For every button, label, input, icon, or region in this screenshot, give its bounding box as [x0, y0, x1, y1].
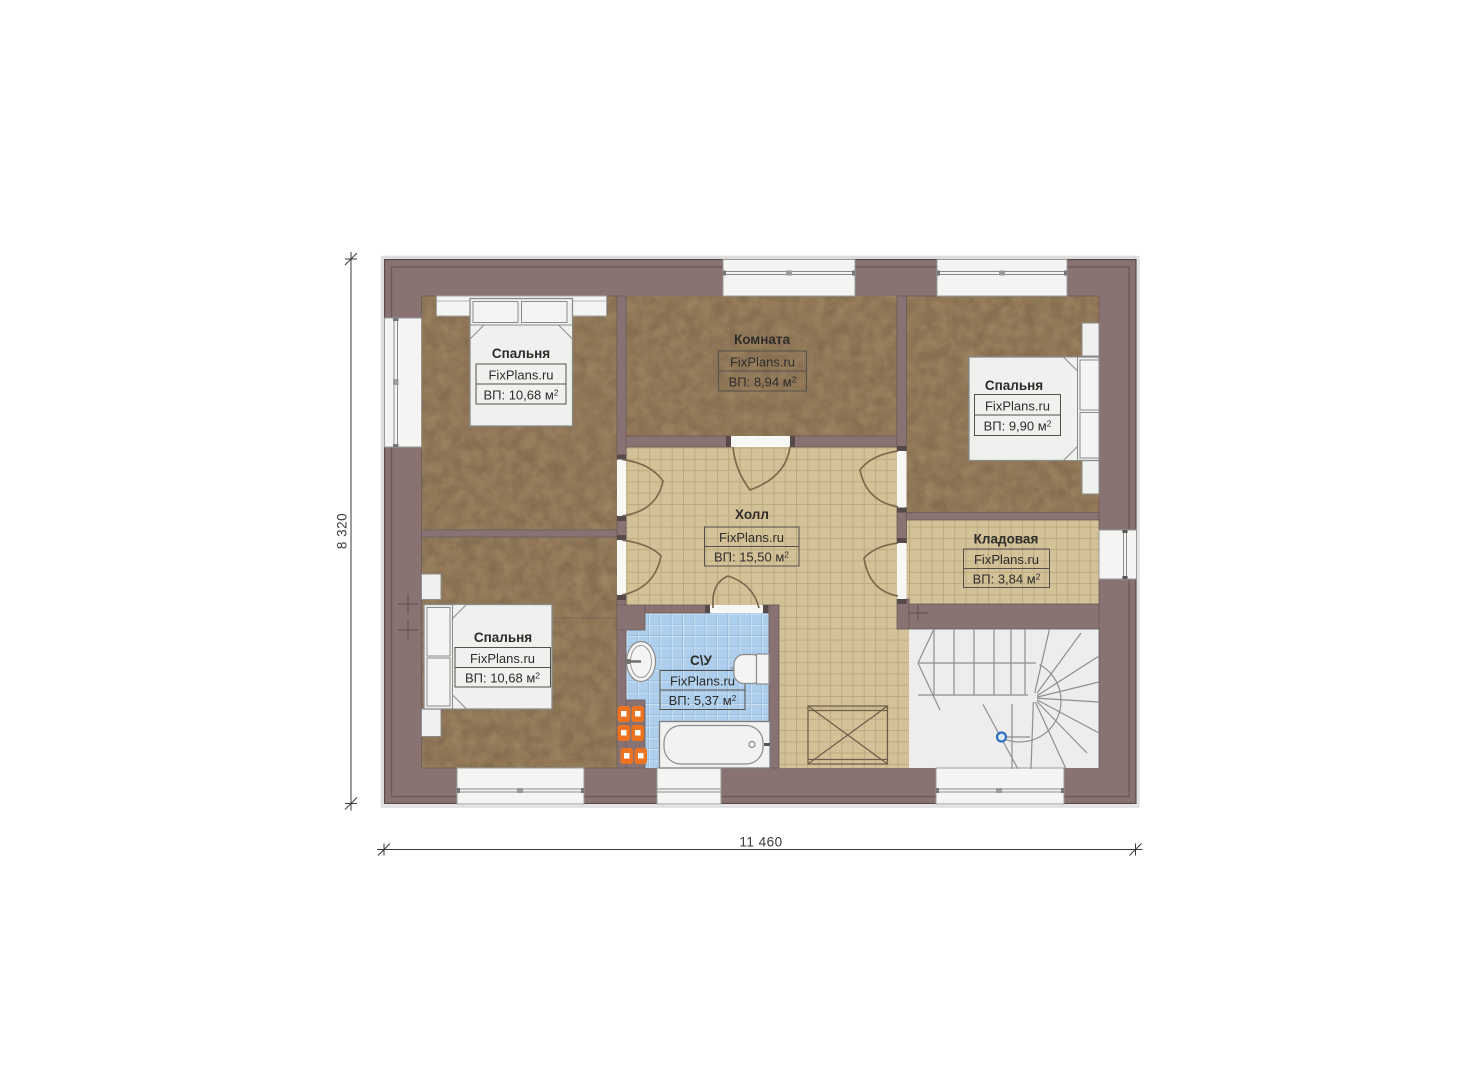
svg-text:ВП: 3,84 м2: ВП: 3,84 м2 [973, 572, 1041, 587]
svg-text:Спальня: Спальня [492, 346, 550, 361]
svg-text:Кладовая: Кладовая [974, 532, 1039, 547]
svg-text:ВП: 15,50 м2: ВП: 15,50 м2 [714, 550, 789, 565]
svg-text:С\У: С\У [690, 653, 713, 668]
svg-text:8 320: 8 320 [335, 513, 350, 549]
svg-text:Холл: Холл [735, 507, 769, 522]
svg-text:ВП: 9,90 м2: ВП: 9,90 м2 [984, 419, 1052, 434]
svg-text:FixPlans.ru: FixPlans.ru [974, 552, 1039, 567]
svg-text:11 460: 11 460 [739, 835, 782, 850]
svg-text:FixPlans.ru: FixPlans.ru [730, 355, 795, 370]
svg-text:FixPlans.ru: FixPlans.ru [719, 530, 784, 545]
svg-text:ВП: 5,37 м2: ВП: 5,37 м2 [669, 693, 737, 708]
svg-text:FixPlans.ru: FixPlans.ru [670, 674, 735, 689]
svg-text:ВП: 8,94 м2: ВП: 8,94 м2 [729, 375, 797, 390]
svg-text:Спальня: Спальня [985, 378, 1043, 393]
svg-text:Комната: Комната [734, 332, 791, 347]
svg-text:FixPlans.ru: FixPlans.ru [985, 399, 1050, 414]
svg-text:FixPlans.ru: FixPlans.ru [488, 368, 553, 383]
svg-text:ВП: 10,68 м2: ВП: 10,68 м2 [465, 671, 540, 686]
svg-text:Спальня: Спальня [474, 630, 532, 645]
svg-text:ВП: 10,68 м2: ВП: 10,68 м2 [483, 388, 558, 403]
svg-text:FixPlans.ru: FixPlans.ru [470, 651, 535, 666]
